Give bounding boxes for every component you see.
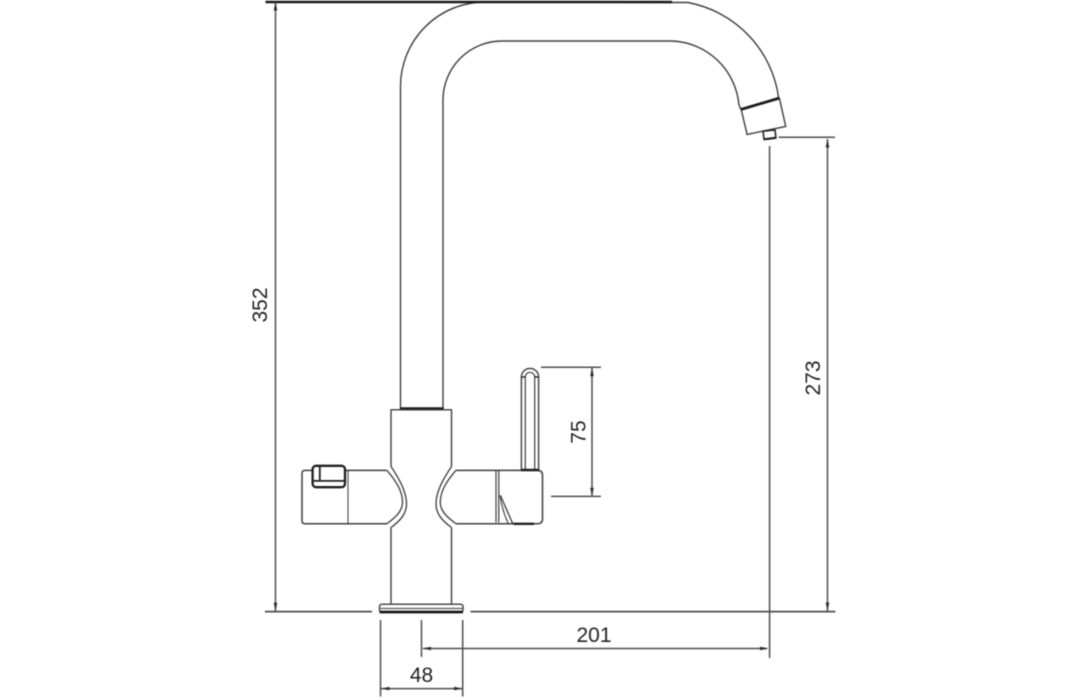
svg-text:75: 75 — [568, 420, 591, 443]
svg-text:48: 48 — [410, 664, 433, 687]
svg-text:201: 201 — [576, 624, 611, 647]
svg-text:273: 273 — [802, 360, 825, 395]
svg-text:352: 352 — [249, 287, 272, 322]
